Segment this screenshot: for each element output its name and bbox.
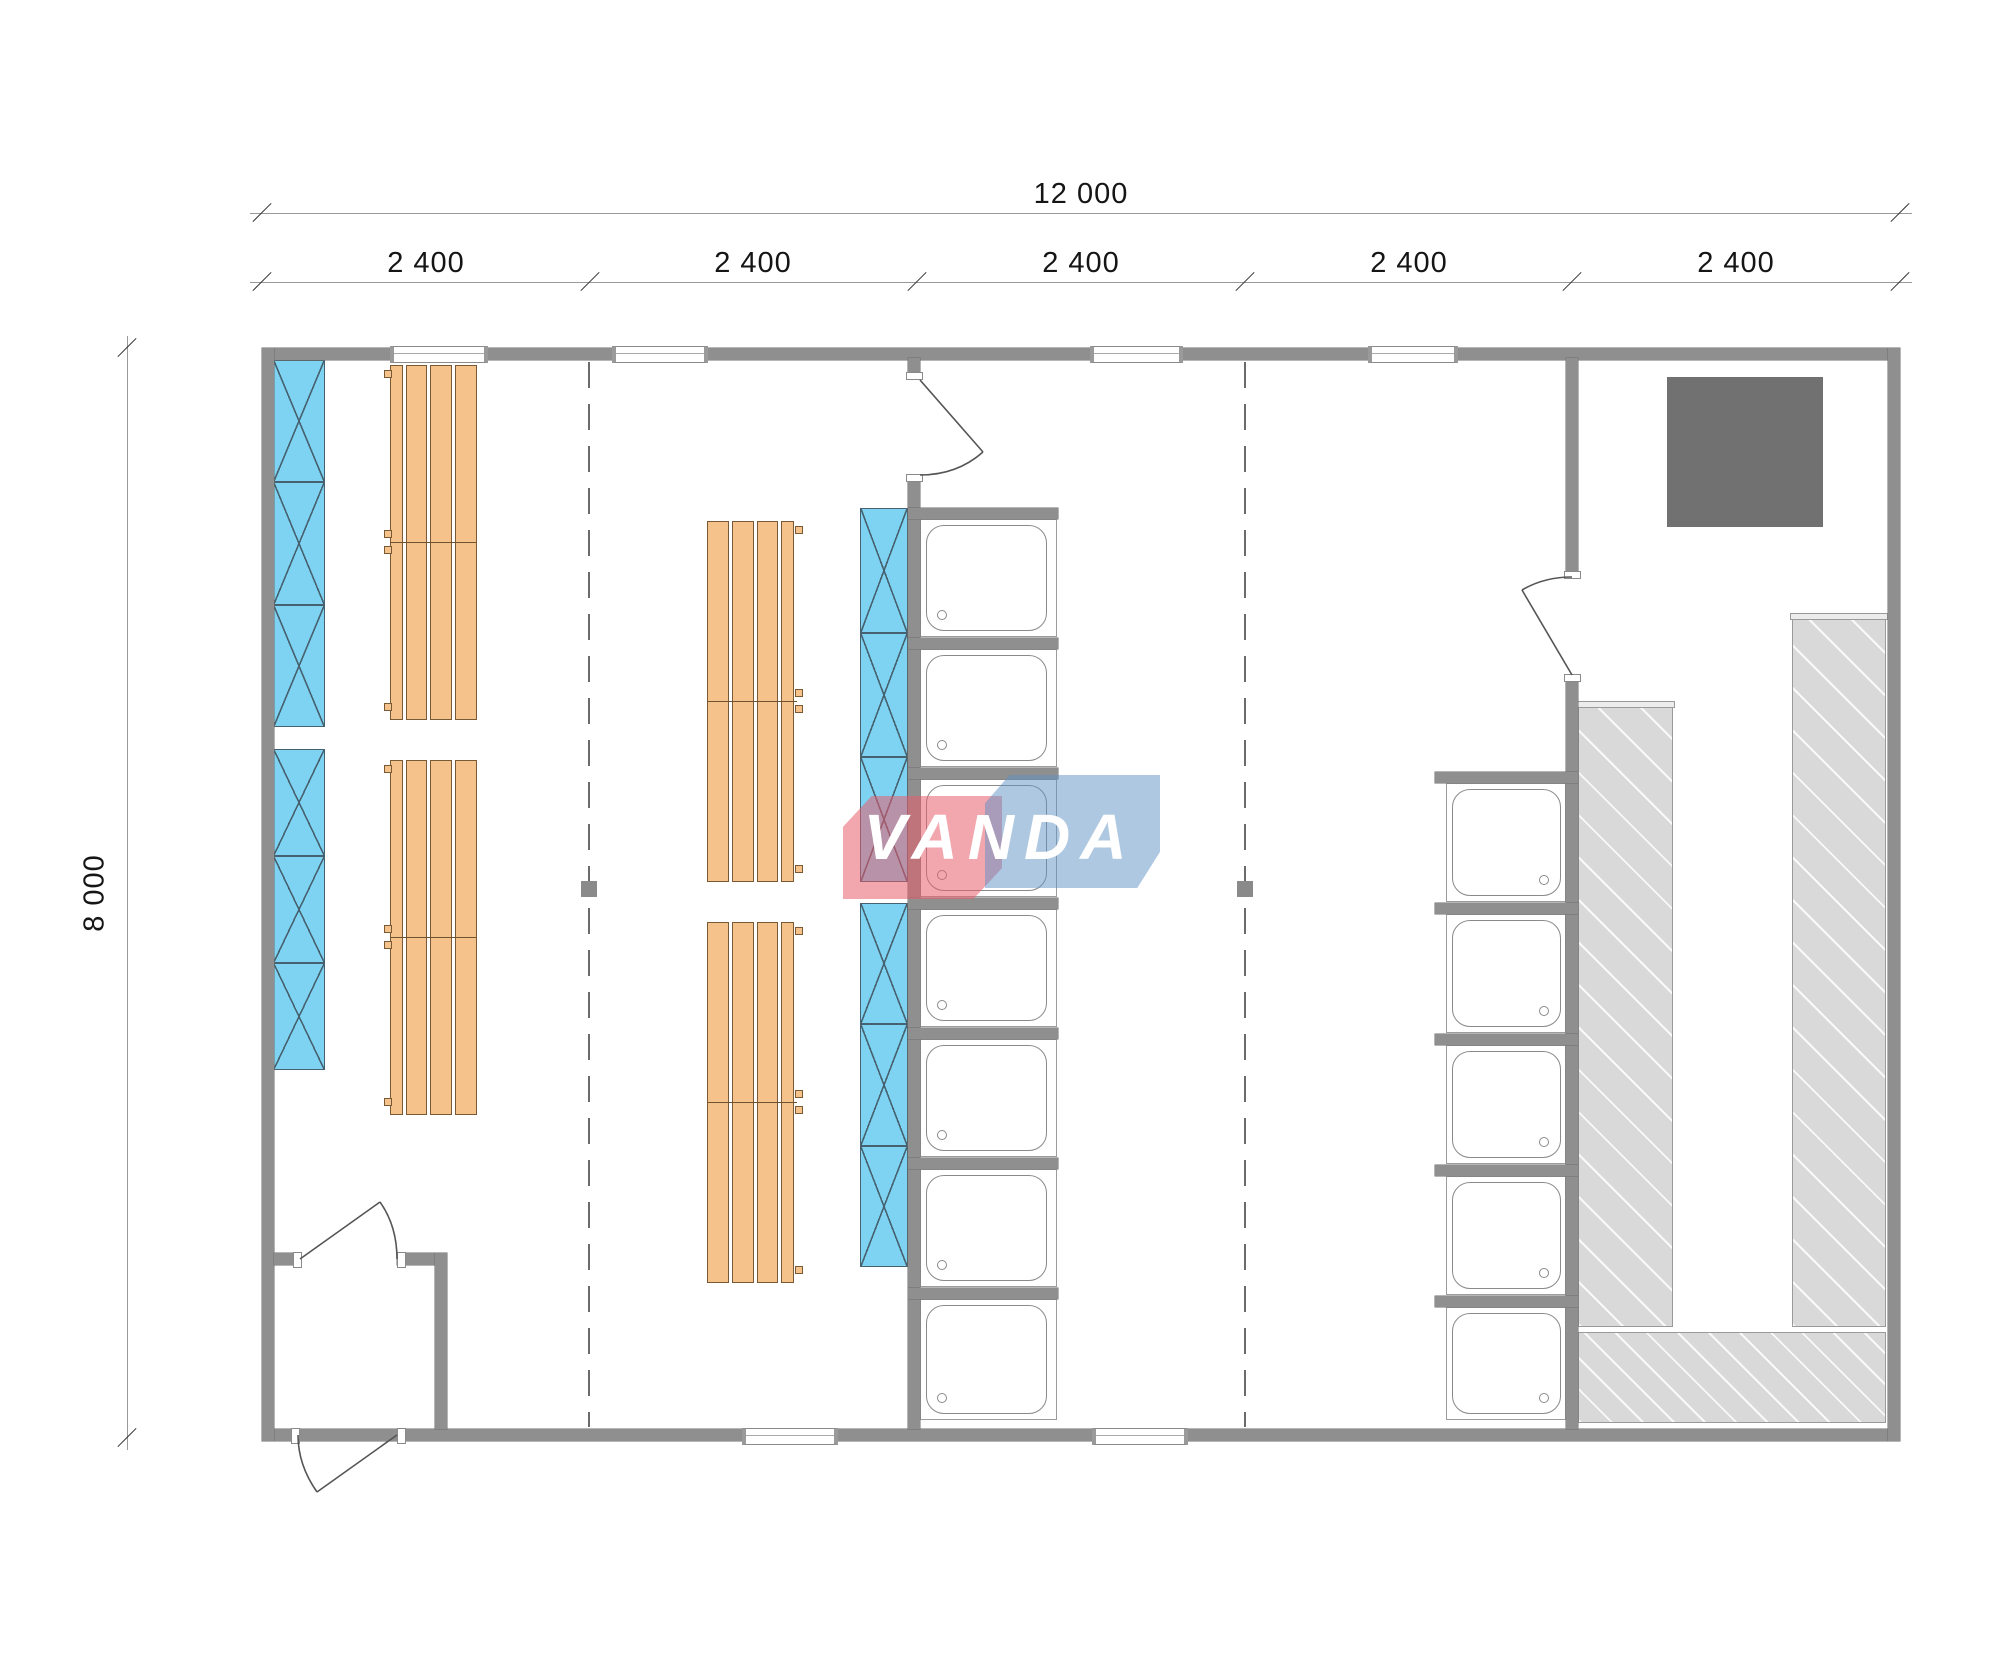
window xyxy=(742,1428,838,1445)
door-arc xyxy=(298,1435,317,1492)
bay-width-label: 2 400 xyxy=(1370,247,1448,280)
pool-deck-left xyxy=(1578,707,1673,1327)
bench-support xyxy=(795,1090,803,1098)
exterior-wall-top xyxy=(262,348,1900,360)
bay-width-label: 2 400 xyxy=(714,247,792,280)
exterior-wall-left xyxy=(262,348,274,1441)
window xyxy=(390,346,488,363)
vanda-logo: VANDA xyxy=(820,768,1180,906)
bench-group xyxy=(390,365,477,720)
door-jamb xyxy=(906,372,923,380)
shower-cell xyxy=(920,909,1057,1027)
shower-cell xyxy=(920,519,1057,637)
bay-width-label: 2 400 xyxy=(1697,247,1775,280)
window xyxy=(1090,346,1183,363)
bench-support xyxy=(795,927,803,935)
heater-panel-section xyxy=(860,633,908,758)
shower-divider xyxy=(908,1158,1058,1169)
shower-cell xyxy=(920,1299,1057,1420)
partition-wall xyxy=(908,475,920,1429)
shower-cell xyxy=(1446,1176,1566,1295)
heater-panel xyxy=(273,749,325,1070)
bench-support xyxy=(384,1098,392,1106)
door-jamb xyxy=(1564,571,1581,579)
bench-group xyxy=(707,521,797,882)
door-jamb xyxy=(397,1252,406,1268)
bench-rail xyxy=(390,542,477,543)
pool-deck-right xyxy=(1792,619,1886,1327)
bench-rail xyxy=(707,701,797,702)
shower-divider xyxy=(908,1028,1058,1039)
shower-cell xyxy=(1446,783,1566,902)
heater-panel-section xyxy=(860,508,908,633)
structural-post xyxy=(1237,881,1253,897)
pool-bottom xyxy=(1578,1332,1886,1423)
bench-support xyxy=(384,530,392,538)
door-leaf xyxy=(317,1435,397,1492)
shower-divider xyxy=(1435,772,1578,783)
shower-cell xyxy=(920,1039,1057,1157)
shower-divider xyxy=(908,1288,1058,1299)
shower-divider xyxy=(1435,1034,1578,1045)
window xyxy=(1368,346,1458,363)
heater-panel xyxy=(273,360,325,727)
exterior-wall-right xyxy=(1888,348,1900,1441)
dimension-line-bays xyxy=(250,282,1912,283)
shower-drain xyxy=(1539,1137,1549,1147)
shower-drain xyxy=(1539,1006,1549,1016)
bench-group xyxy=(707,922,797,1283)
bay-width-label: 2 400 xyxy=(387,247,465,280)
bay-width-label: 2 400 xyxy=(1042,247,1120,280)
door-arc xyxy=(380,1202,397,1259)
heater-panel xyxy=(860,903,908,1267)
door-leaf xyxy=(300,1202,380,1259)
shower-drain xyxy=(1539,1268,1549,1278)
bench-support xyxy=(384,925,392,933)
shower-drain xyxy=(1539,1393,1549,1403)
door-leaf xyxy=(1522,590,1572,675)
door-jamb xyxy=(291,1428,300,1444)
shower-cell xyxy=(1446,914,1566,1033)
door-jamb xyxy=(293,1252,302,1268)
shower-cell xyxy=(920,1169,1057,1287)
heater-panel-section xyxy=(273,360,325,482)
bench-support xyxy=(384,941,392,949)
bench-support xyxy=(384,765,392,773)
bench-support xyxy=(384,370,392,378)
vestibule-wall xyxy=(435,1253,447,1429)
shower-divider xyxy=(1435,1165,1578,1176)
shower-drain xyxy=(937,1000,947,1010)
shower-drain xyxy=(937,1260,947,1270)
bench-support xyxy=(795,689,803,697)
bench-support xyxy=(384,703,392,711)
heater-panel-section xyxy=(273,605,325,727)
shower-drain xyxy=(937,1393,947,1403)
window xyxy=(612,346,708,363)
bench-rail xyxy=(707,1102,797,1103)
bench-support xyxy=(795,1106,803,1114)
sauna-stove xyxy=(1667,377,1823,527)
logo-text: VANDA xyxy=(820,802,1180,872)
window xyxy=(1092,1428,1188,1445)
shower-divider xyxy=(908,508,1058,519)
door-jamb xyxy=(906,474,923,482)
heater-panel-section xyxy=(860,1024,908,1145)
structural-post xyxy=(581,881,597,897)
exterior-wall-bottom xyxy=(262,1429,1900,1441)
heater-panel-section xyxy=(273,856,325,963)
shower-divider xyxy=(1435,903,1578,914)
door-arc xyxy=(920,452,983,475)
heater-panel-section xyxy=(273,749,325,856)
partition-wall xyxy=(1566,675,1578,1429)
shower-cell xyxy=(1446,1307,1566,1420)
shower-cell xyxy=(920,649,1057,767)
floor-plan-canvas: 12 000 2 400 2 400 2 400 2 400 2 400 8 0… xyxy=(0,0,2000,1669)
shower-drain xyxy=(937,1130,947,1140)
bench-support xyxy=(795,526,803,534)
heater-panel-section xyxy=(273,963,325,1070)
door-leaf xyxy=(920,380,983,452)
heater-panel-section xyxy=(860,903,908,1024)
partition-wall xyxy=(1566,358,1578,577)
shower-drain xyxy=(1539,875,1549,885)
shower-drain xyxy=(937,610,947,620)
bench-rail xyxy=(390,937,477,938)
bench-support xyxy=(795,705,803,713)
door-jamb xyxy=(397,1428,406,1444)
shower-drain xyxy=(937,740,947,750)
door-jamb xyxy=(1564,674,1581,682)
dimension-line-total-height xyxy=(127,336,128,1450)
bench-support xyxy=(795,1266,803,1274)
bench-support xyxy=(795,865,803,873)
total-width-label: 12 000 xyxy=(1034,178,1129,211)
heater-panel-section xyxy=(273,482,325,604)
total-height-label: 8 000 xyxy=(79,854,112,932)
dimension-line-total-width xyxy=(250,213,1912,214)
shower-divider xyxy=(908,638,1058,649)
bench-support xyxy=(384,546,392,554)
shower-cell xyxy=(1446,1045,1566,1164)
shower-divider xyxy=(1435,1296,1578,1307)
bench-group xyxy=(390,760,477,1115)
heater-panel-section xyxy=(860,1146,908,1267)
